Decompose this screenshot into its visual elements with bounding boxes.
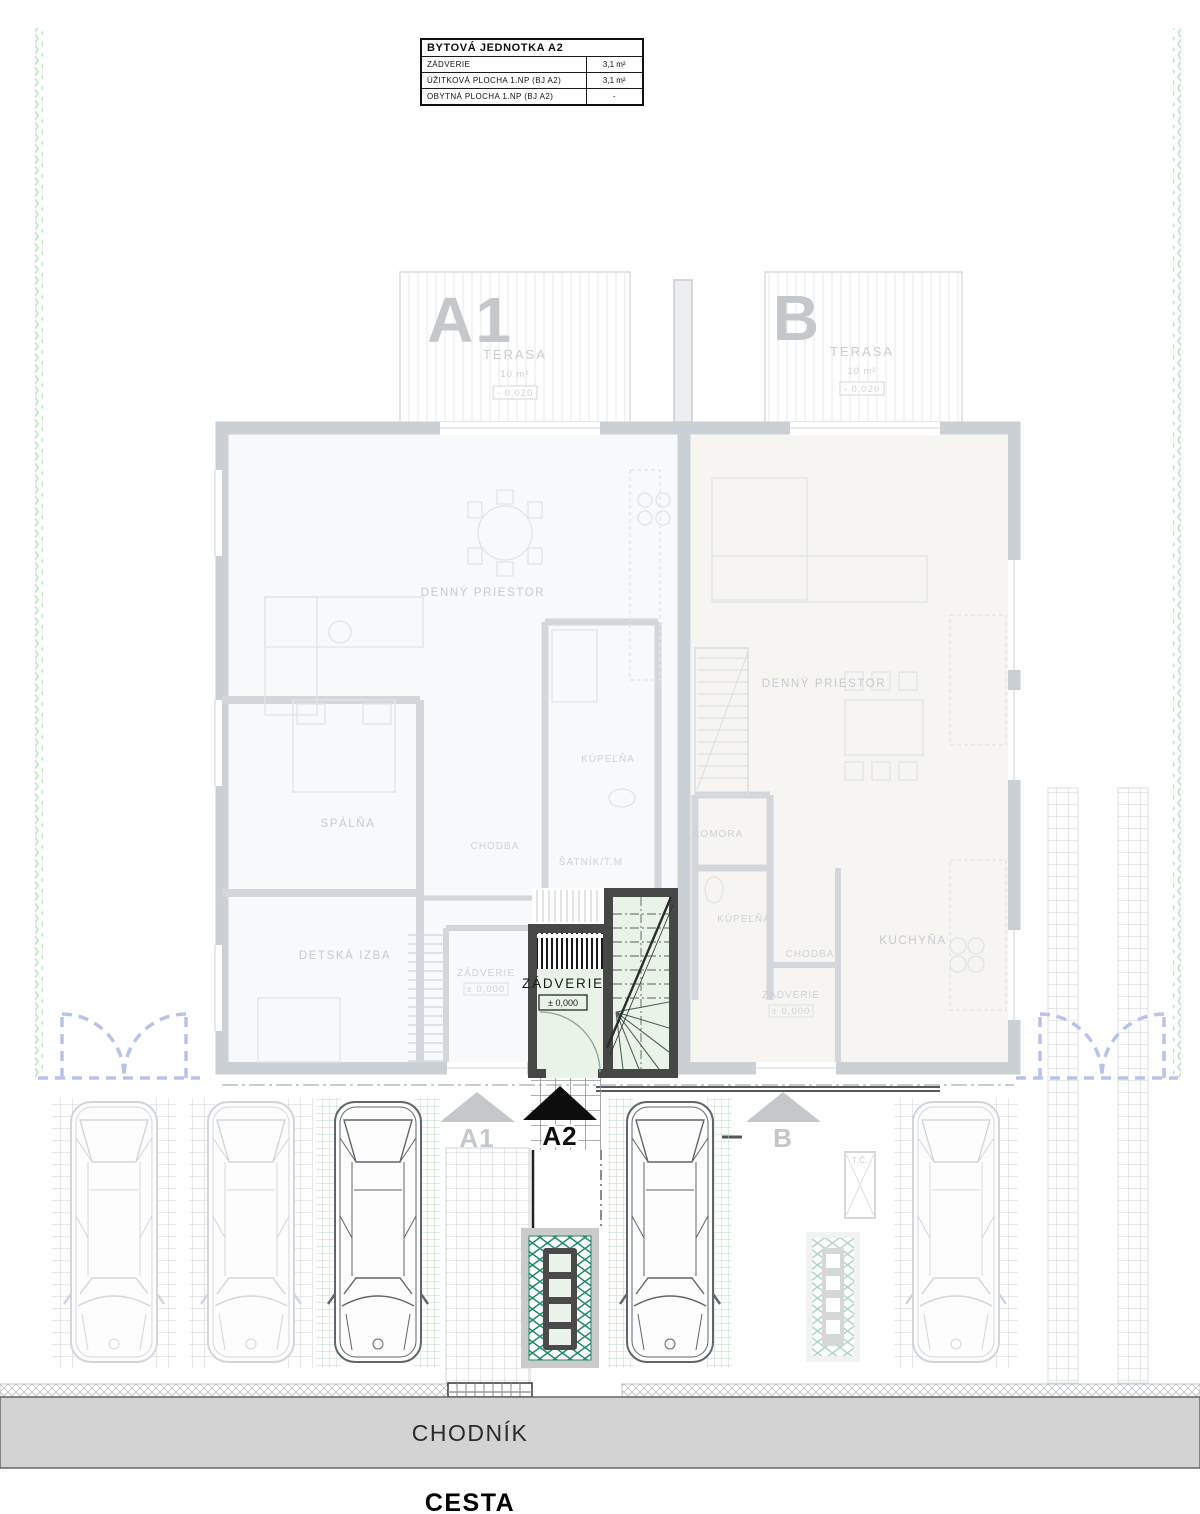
- boundary-zigzag-left: [35, 28, 43, 1078]
- room-label-a1-living: DENNÝ PRIESTOR: [421, 586, 545, 599]
- room-label-a1-kids: DETSKÁ IZBA: [299, 949, 391, 962]
- room-label-b-entry-level: ± 0,000: [772, 1006, 811, 1017]
- heat-pump-label: T.Č.: [852, 1156, 868, 1165]
- heat-pump-box: T.Č.: [845, 1152, 875, 1218]
- terrace-b-label: TERASA: [830, 344, 894, 359]
- tile-column-right-2: [1118, 788, 1148, 1383]
- terrace-a1-area: 10 m²: [500, 369, 529, 380]
- room-label-a1-wardrobe: ŠATNÍK/T.M: [559, 855, 623, 868]
- legend-table-header: BYTOVÁ JEDNOTKA A2: [421, 39, 643, 57]
- floor-plan-page: { "legend_table": { "title": "BYTOVÁ JED…: [0, 0, 1200, 1514]
- legend-row-label: ÚŽITKOVÁ PLOCHA 1.NP (BJ A2): [421, 73, 586, 89]
- planting-strip-b: [806, 1232, 860, 1362]
- room-label-a2-entry: ZÁDVERIE: [522, 976, 604, 991]
- legend-row-value: 3,1 m²: [586, 57, 643, 73]
- gate-left: [38, 1014, 200, 1078]
- unit-a1-big-label: A1: [427, 284, 513, 356]
- marker-a2-label: A2: [542, 1121, 577, 1151]
- room-label-a1-bath: KÚPEĽŇA: [581, 752, 635, 765]
- table-row: ZÁDVERIE 3,1 m²: [421, 57, 643, 73]
- legend-row-label: ZÁDVERIE: [421, 57, 586, 73]
- marker-a1: A1: [440, 1092, 515, 1153]
- room-label-b-kitchen: KUCHYŇA: [879, 934, 946, 947]
- gate-right: [1016, 1014, 1178, 1078]
- marker-b-label: B: [773, 1123, 793, 1153]
- tile-column-right-1: [1048, 788, 1078, 1383]
- legend-table-title: BYTOVÁ JEDNOTKA A2: [421, 39, 643, 57]
- table-row: OBYTNÁ PLOCHA 1.NP (BJ A2) -: [421, 89, 643, 106]
- chimney: [674, 280, 692, 422]
- a2-closet-hatch: [537, 933, 603, 969]
- room-label-b-hall: CHODBA: [786, 949, 835, 960]
- road-label: CESTA: [425, 1489, 515, 1514]
- room-label-a1-entry-level: ± 0,000: [467, 984, 506, 995]
- unit-b-big-label: B: [773, 282, 821, 354]
- room-label-b-bath: KÚPEĽŇA: [717, 912, 771, 925]
- legend-row-value: -: [586, 89, 643, 106]
- room-label-a1-entry: ZÁDVERIE: [457, 966, 515, 979]
- legend-table: BYTOVÁ JEDNOTKA A2 ZÁDVERIE 3,1 m² ÚŽITK…: [420, 38, 644, 106]
- terrace-a1-level: - 0,020: [497, 388, 534, 399]
- marker-b: B: [746, 1092, 821, 1153]
- car-2: [189, 1098, 313, 1368]
- table-row: ÚŽITKOVÁ PLOCHA 1.NP (BJ A2) 3,1 m²: [421, 73, 643, 89]
- legend-row-label: OBYTNÁ PLOCHA 1.NP (BJ A2): [421, 89, 586, 106]
- planting-strip-a2: [521, 1228, 599, 1368]
- sidewalk-band: CHODNÍK: [0, 1383, 1200, 1468]
- floor-plan-canvas: A1 TERASA 10 m² - 0,020 B TERASA 10 m² -…: [0, 0, 1200, 1514]
- car-4: [608, 1098, 732, 1368]
- unit-a2-entry: ZÁDVERIE ± 0,000: [522, 888, 678, 1078]
- room-label-a1-hall: CHODBA: [471, 841, 520, 852]
- walkway-a1-grid: [446, 1148, 530, 1383]
- car-3: [316, 1098, 440, 1368]
- legend-row-value: 3,1 m²: [586, 73, 643, 89]
- sidewalk-label: CHODNÍK: [412, 1420, 529, 1446]
- room-label-b-pantry: KOMORA: [693, 829, 743, 840]
- room-label-b-entry: ZÁDVERIE: [762, 988, 820, 1001]
- car-5: [894, 1098, 1018, 1368]
- terrace-b-level: - 0,020: [844, 384, 881, 395]
- room-label-a2-entry-level: ± 0,000: [548, 998, 578, 1008]
- marker-a1-label: A1: [459, 1123, 494, 1153]
- terrace-b: B TERASA 10 m² - 0,020: [765, 272, 962, 428]
- terrace-b-area: 10 m²: [847, 366, 876, 377]
- terrace-a1-label: TERASA: [483, 347, 547, 362]
- room-label-b-living: DENNÝ PRIESTOR: [762, 677, 886, 690]
- room-label-a1-bedroom: SPÁLŇA: [321, 817, 376, 830]
- car-1: [52, 1098, 176, 1368]
- walkway-a2-recess: [533, 1150, 601, 1228]
- terrace-a1: A1 TERASA 10 m² - 0,020: [400, 272, 630, 442]
- boundary-zigzag-right: [1173, 28, 1181, 1078]
- a2-door-threshold: [546, 1069, 598, 1078]
